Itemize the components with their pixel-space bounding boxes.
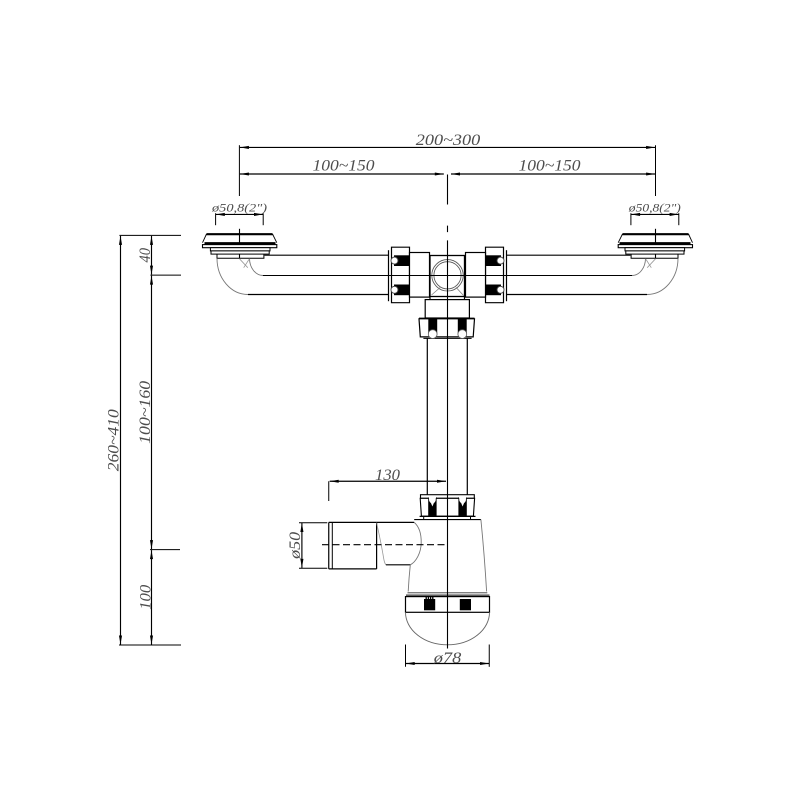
svg-text:100~150: 100~150 [519,158,581,175]
svg-text:260~410: 260~410 [106,409,123,471]
svg-text:100~160: 100~160 [137,381,154,444]
svg-text:130: 130 [375,467,400,484]
svg-text:ø78: ø78 [433,650,462,667]
svg-text:200~300: 200~300 [416,132,481,149]
svg-text:40: 40 [137,248,154,263]
svg-text:100: 100 [137,585,154,610]
svg-text:ø50,8(2"): ø50,8(2") [211,200,267,214]
svg-text:100~150: 100~150 [313,158,375,175]
svg-text:ø50: ø50 [287,532,304,560]
svg-text:ø50,8(2"): ø50,8(2") [628,200,681,214]
